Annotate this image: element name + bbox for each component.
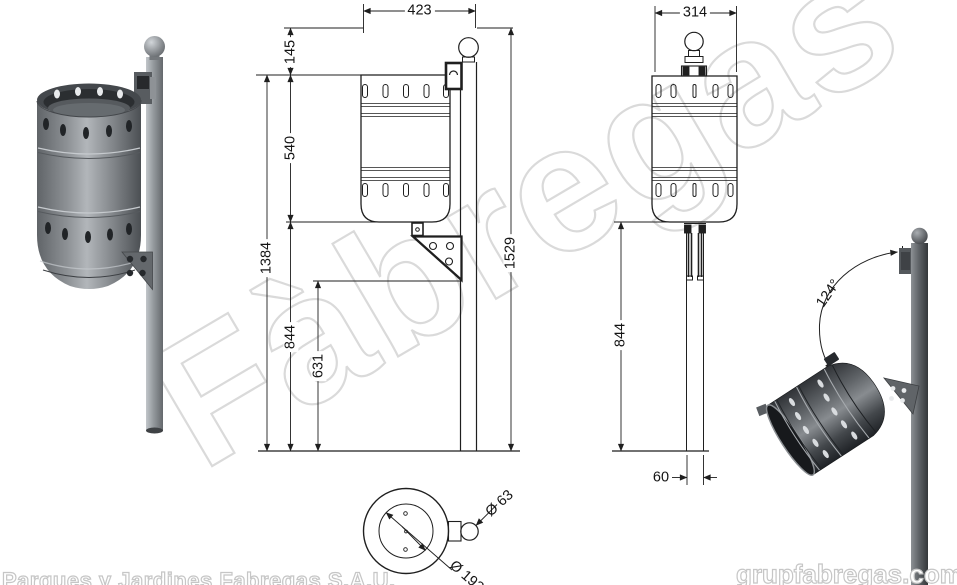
ball-finial-tilted [911, 228, 927, 244]
ball-finial-3d [144, 36, 165, 57]
pole-tilted [911, 243, 928, 585]
dim-label-top-offset: 145 [283, 36, 298, 66]
dim-label-bin-height: 540 [283, 133, 298, 163]
top-bracket-front [446, 63, 462, 89]
pole-3d [146, 57, 163, 431]
dim-label-bin-depth: 314 [680, 5, 710, 20]
lower-bracket-front [412, 223, 462, 280]
pole-circle [461, 523, 478, 540]
pole-connector [449, 522, 462, 542]
top-view [364, 489, 498, 574]
dim-label-top-width: 423 [404, 3, 434, 18]
pole-bottom-cap [146, 428, 163, 434]
dim-label-pole-height: 844 [613, 320, 628, 350]
dim-label-bracket-bottom: 631 [311, 351, 326, 381]
company-name: Parques y Jardines Fabregas S.A.U. [2, 568, 396, 585]
dim-line-diameter-192 [386, 513, 452, 571]
drawing-canvas: Fàbregas [0, 0, 957, 585]
bin-3d-render [37, 36, 165, 434]
dim-label-overall-height: 1529 [503, 234, 518, 272]
ball-finial-front [459, 38, 479, 58]
bin-tilted [752, 343, 897, 482]
dim-label-pole-width: 60 [650, 470, 672, 485]
front-view [256, 4, 520, 451]
dim-label-bracket-to-ground: 844 [283, 322, 298, 352]
rotation-arc [819, 252, 897, 370]
pole-side [684, 224, 706, 452]
side-view [612, 6, 737, 485]
website-url: grupfabregas.com [736, 559, 957, 585]
ball-finial-side [685, 32, 703, 50]
tilted-view [752, 228, 928, 585]
dim-label-bin-top-to-ground: 1384 [259, 239, 274, 277]
technical-drawing [0, 0, 957, 585]
bin-body-3d [37, 84, 141, 290]
